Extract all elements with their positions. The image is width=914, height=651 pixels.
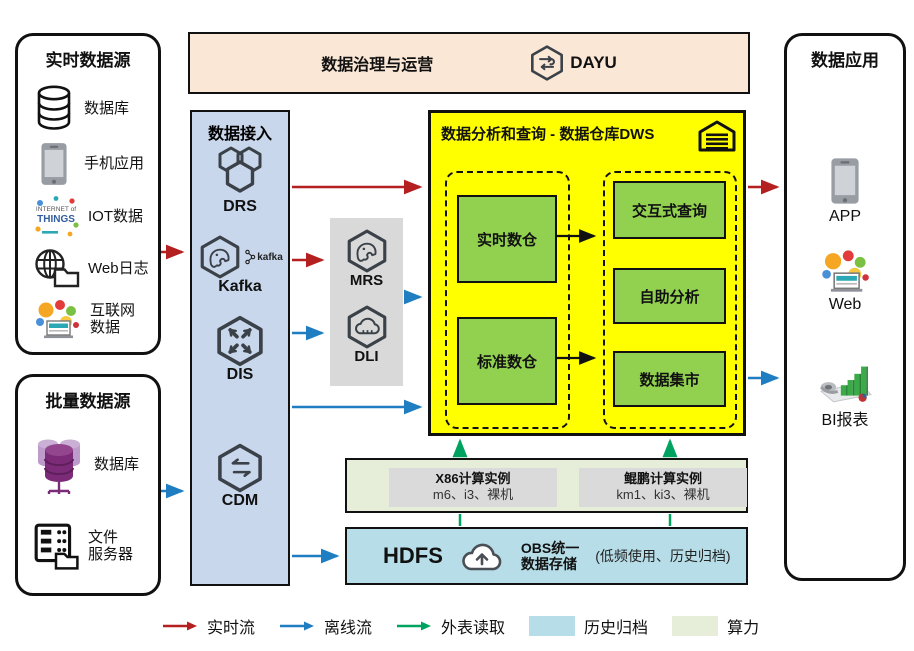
web-collage-icon — [819, 248, 871, 294]
app-item-bi: BI报表 — [787, 354, 903, 430]
dws-self-service-analysis: 自助分析 — [613, 268, 726, 324]
dli-icon — [343, 304, 391, 350]
legend: 实时流 离线流 外表读取 历史归档 算力 — [162, 610, 842, 642]
dayu-label: DAYU — [570, 53, 617, 73]
realtime-sources-panel: 实时数据源 数据库 手机应用 INTERN — [15, 33, 161, 355]
source-iot: INTERNET of THINGS IOT数据 — [18, 195, 158, 239]
compute-x86-group: X86计算实例 m6、i3、裸机 — [389, 468, 557, 507]
dws-data-mart: 数据集市 — [613, 351, 726, 407]
storage-note: (低频使用、历史归档) — [595, 546, 730, 566]
dws-realtime-warehouse: 实时数仓 — [457, 195, 557, 283]
compute-swatch — [672, 616, 718, 636]
legend-realtime-flow: 实时流 — [162, 614, 255, 638]
compute-box: X86计算实例 m6、i3、裸机 鲲鹏计算实例 km1、ki3、裸机 — [345, 458, 748, 513]
dws-interactive-query: 交互式查询 — [613, 181, 726, 239]
mrs-icon — [343, 228, 391, 274]
service-kafka: kafka Kafka — [192, 234, 288, 296]
service-dis: DIS — [192, 314, 288, 384]
dis-icon — [212, 314, 268, 368]
dayu-logo: DAYU — [528, 44, 617, 82]
source-internet-data: 互联网 数据 — [18, 298, 158, 340]
kafka-icon — [197, 234, 243, 280]
warehouse-icon — [697, 119, 737, 153]
dws-standard-warehouse: 标准数仓 — [457, 317, 557, 405]
app-item-web: Web — [787, 248, 903, 314]
legend-offline-flow: 离线流 — [279, 614, 372, 638]
service-dli: DLI — [330, 304, 403, 365]
app-phone-icon — [828, 156, 862, 206]
ingestion-column: 数据接入 DRS — [190, 110, 290, 586]
blue-arrow-icon — [279, 620, 315, 632]
legend-compute-power: 算力 — [672, 614, 759, 638]
hdfs-label: HDFS — [383, 543, 443, 569]
globe-folder-icon — [32, 247, 80, 289]
service-cdm: CDM — [192, 442, 288, 510]
kafka-logo-icon — [244, 249, 256, 265]
source-mobile-app: 手机应用 — [18, 141, 158, 187]
dws-box: 数据分析和查询 - 数据仓库DWS 实时数仓 标准数仓 交互式查询 自助分析 数… — [428, 110, 746, 436]
governance-banner: 数据治理与运营 DAYU — [188, 32, 750, 94]
source-database: 数据库 — [18, 84, 158, 132]
processing-box: MRS DLI — [330, 218, 403, 386]
drs-icon — [211, 144, 269, 200]
storage-box: HDFS OBS统一 数据存储 (低频使用、历史归档) — [345, 527, 748, 585]
governance-title: 数据治理与运营 — [321, 51, 433, 75]
legend-external-read: 外表读取 — [396, 614, 505, 638]
archive-swatch — [529, 616, 575, 636]
database-icon — [32, 84, 76, 132]
service-drs: DRS — [192, 144, 288, 216]
file-server-icon — [32, 522, 80, 570]
cdm-icon — [213, 442, 267, 494]
legend-history-archive: 历史归档 — [529, 614, 648, 638]
dayu-icon — [528, 44, 566, 82]
service-mrs: MRS — [330, 228, 403, 289]
architecture-diagram: 数据治理与运营 DAYU 实时数据源 数据库 — [0, 0, 914, 651]
red-arrow-icon — [162, 620, 198, 632]
batch-sources-panel: 批量数据源 数据库 — [15, 374, 161, 596]
iot-wordcloud-icon: INTERNET of THINGS — [32, 195, 80, 239]
data-apps-panel: 数据应用 APP Web BI报表 — [784, 33, 906, 581]
data-apps-title: 数据应用 — [787, 36, 903, 73]
compute-kunpeng-group: 鲲鹏计算实例 km1、ki3、裸机 — [579, 468, 747, 507]
obs-cloud-upload-icon — [459, 539, 505, 573]
obs-label: OBS统一 数据存储 — [521, 540, 579, 572]
realtime-sources-title: 实时数据源 — [18, 36, 158, 73]
svg-text:INTERNET of: INTERNET of — [36, 206, 76, 213]
batch-sources-title: 批量数据源 — [18, 377, 158, 414]
phone-icon — [32, 141, 76, 187]
dws-title: 数据分析和查询 - 数据仓库DWS — [441, 123, 654, 144]
source-web-log: Web日志 — [18, 247, 158, 289]
ingestion-title: 数据接入 — [192, 112, 288, 144]
batch-source-file-server: 文件 服务器 — [18, 522, 158, 570]
internet-collage-icon — [32, 298, 82, 340]
bi-report-icon — [817, 354, 873, 404]
svg-text:THINGS: THINGS — [37, 214, 75, 225]
batch-source-database: 数据库 — [18, 434, 158, 496]
app-item-app: APP — [787, 156, 903, 226]
green-arrow-icon — [396, 620, 432, 632]
kafka-badge: kafka — [244, 249, 283, 265]
purple-database-icon — [32, 434, 86, 496]
